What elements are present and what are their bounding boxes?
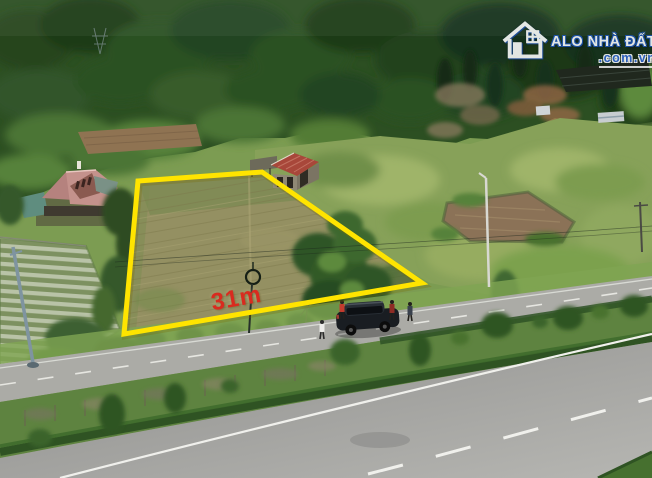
- aerial-photo: 31m ALO NHÀ ĐẤT .com.vn: [0, 0, 652, 478]
- haze: [0, 0, 652, 36]
- photo-background: [0, 0, 652, 478]
